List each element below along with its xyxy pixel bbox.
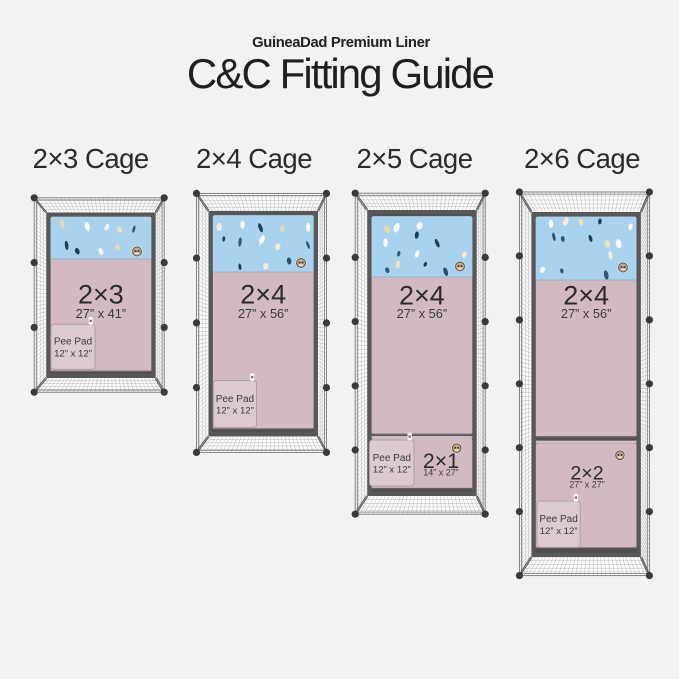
svg-text:12” x 12”: 12” x 12” (373, 465, 411, 476)
svg-text:2×4: 2×4 (240, 279, 286, 309)
svg-text:2×6 Cage: 2×6 Cage (524, 143, 640, 174)
svg-text:GuineaDad Premium Liner: GuineaDad Premium Liner (252, 35, 430, 51)
svg-text:27” x 27”: 27” x 27” (569, 480, 605, 490)
svg-text:2×3: 2×3 (78, 280, 124, 310)
svg-text:27” x 56”: 27” x 56” (397, 306, 448, 321)
svg-text:Pee Pad: Pee Pad (216, 394, 254, 405)
svg-text:14” x 27”: 14” x 27” (423, 468, 459, 478)
svg-text:27” x 41”: 27” x 41” (76, 306, 127, 321)
svg-text:12” x 12”: 12” x 12” (540, 526, 578, 537)
svg-text:12” x 12”: 12” x 12” (216, 406, 254, 417)
svg-text:27” x 56”: 27” x 56” (561, 306, 612, 321)
svg-text:27” x 56”: 27” x 56” (238, 306, 289, 321)
svg-text:Pee Pad: Pee Pad (54, 337, 92, 348)
svg-text:2×4 Cage: 2×4 Cage (196, 143, 312, 174)
svg-text:12” x 12”: 12” x 12” (54, 349, 92, 360)
svg-text:Pee Pad: Pee Pad (539, 514, 577, 525)
svg-text:2×3 Cage: 2×3 Cage (33, 143, 149, 174)
svg-text:C&C Fitting Guide: C&C Fitting Guide (187, 50, 494, 97)
svg-text:2×5 Cage: 2×5 Cage (356, 143, 472, 174)
svg-text:Pee Pad: Pee Pad (373, 453, 411, 464)
